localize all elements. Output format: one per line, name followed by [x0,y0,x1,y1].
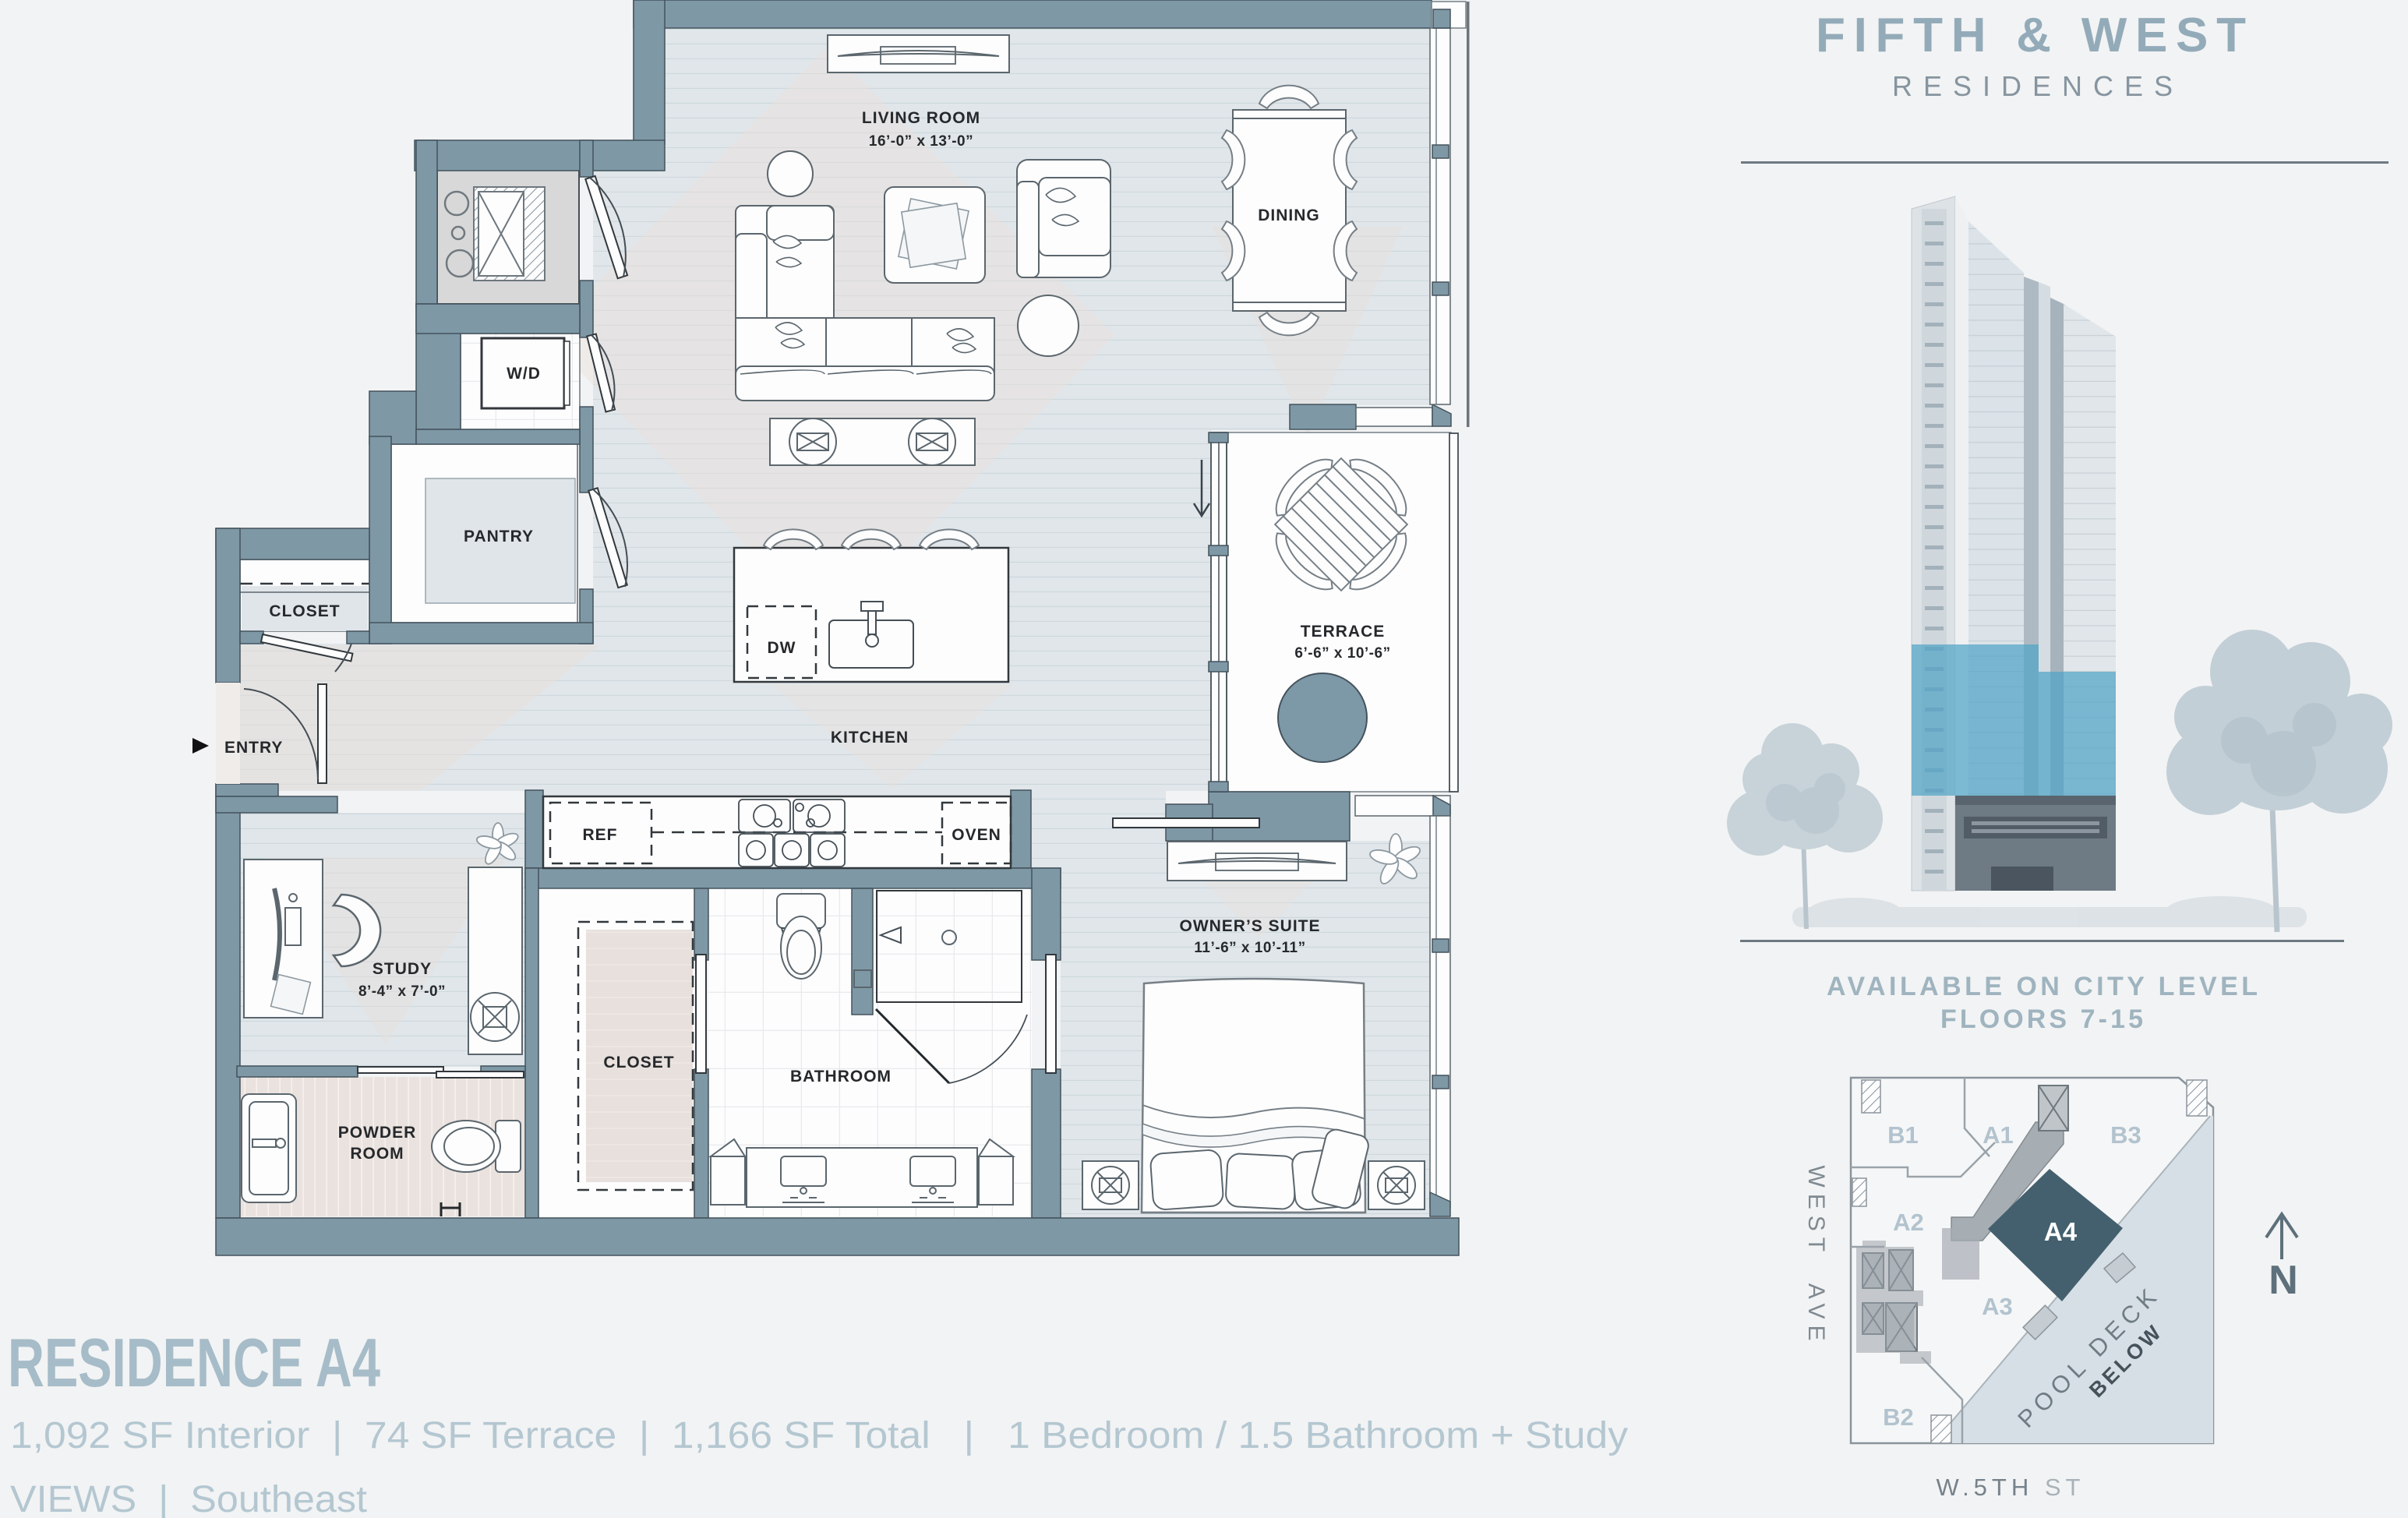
svg-text:FLOORS 7-15: FLOORS 7-15 [1940,1004,2143,1034]
svg-text:DINING: DINING [1258,207,1320,224]
svg-text:TERRACE: TERRACE [1301,623,1386,641]
svg-text:B3: B3 [2110,1121,2141,1149]
svg-text:VIEWS | Southeast: VIEWS | Southeast [10,1479,367,1518]
svg-text:DW: DW [768,639,796,657]
svg-text:KITCHEN: KITCHEN [831,729,909,747]
svg-text:OVEN: OVEN [952,826,1001,844]
svg-text:RESIDENCE A4: RESIDENCE A4 [8,1324,380,1401]
svg-text:W.5TH ST: W.5TH ST [1937,1474,2085,1501]
svg-text:WEST AVE: WEST AVE [1803,1165,1829,1347]
svg-text:ENTRY: ENTRY [224,739,283,757]
svg-text:REF: REF [583,826,618,844]
svg-text:11’-6” x 10’-11”: 11’-6” x 10’-11” [1194,940,1305,956]
svg-text:RESIDENCES: RESIDENCES [1892,70,2173,102]
svg-text:16’-0” x 13’-0”: 16’-0” x 13’-0” [869,133,973,150]
svg-text:CLOSET: CLOSET [603,1054,674,1071]
svg-text:STUDY: STUDY [372,960,432,978]
svg-text:A2: A2 [1893,1209,1924,1236]
svg-text:PANTRY: PANTRY [464,528,534,545]
svg-text:OWNER’S SUITE: OWNER’S SUITE [1179,917,1320,935]
svg-text:A3: A3 [1982,1293,2013,1320]
svg-text:LIVING ROOM: LIVING ROOM [862,109,980,127]
svg-text:AVAILABLE ON CITY LEVEL: AVAILABLE ON CITY LEVEL [1827,972,2258,1001]
svg-text:6’-6” x 10’-6”: 6’-6” x 10’-6” [1294,645,1390,662]
svg-text:N: N [2269,1258,2298,1303]
svg-text:W/D: W/D [507,365,541,383]
svg-text:B2: B2 [1883,1403,1914,1431]
svg-text:POWDER: POWDER [338,1124,417,1142]
svg-text:FIFTH & WEST: FIFTH & WEST [1816,9,2246,62]
svg-text:A4: A4 [2044,1217,2078,1246]
svg-text:ROOM: ROOM [350,1145,404,1163]
svg-text:8’-4” x 7’-0”: 8’-4” x 7’-0” [358,983,446,1000]
svg-text:CLOSET: CLOSET [269,602,340,620]
svg-text:A1: A1 [1983,1121,2014,1149]
svg-text:1,092 SF Interior | 74 SF Te: 1,092 SF Interior | 74 SF Terrace | 1,16… [10,1415,1628,1456]
svg-text:B1: B1 [1887,1121,1919,1149]
svg-text:BATHROOM: BATHROOM [790,1068,892,1086]
